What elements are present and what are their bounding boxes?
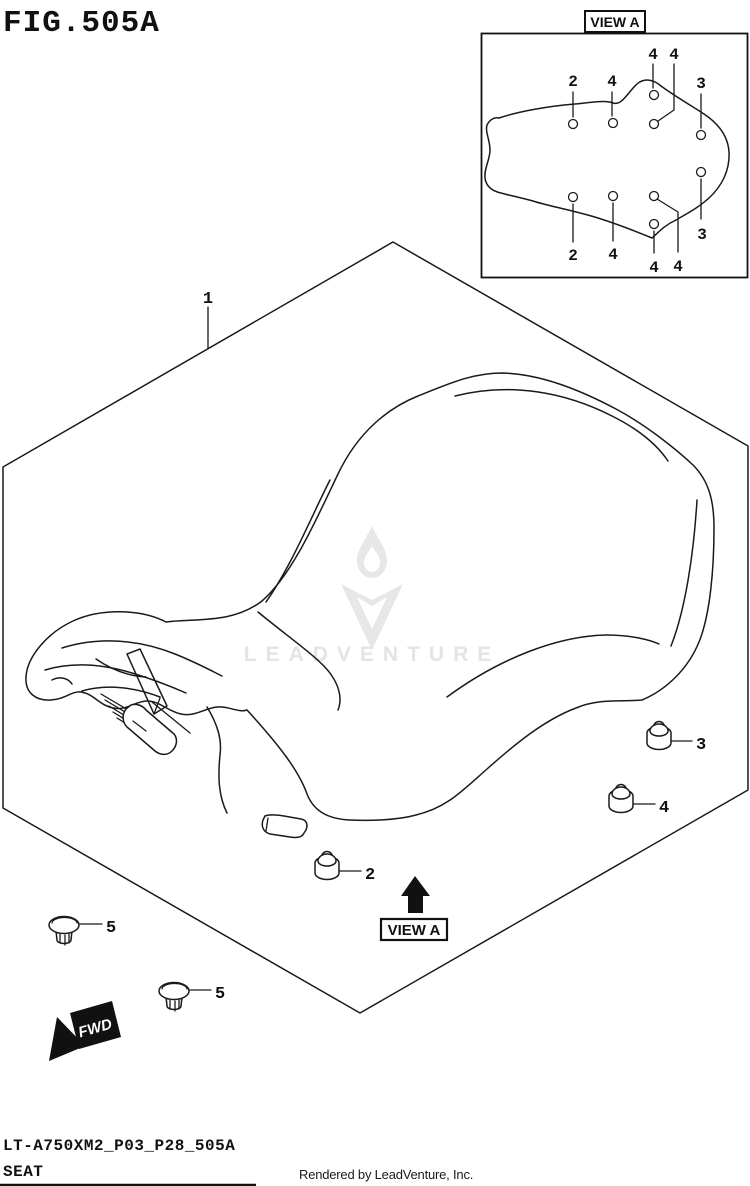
document-code: LT-A750XM2_P03_P28_505A [3, 1137, 235, 1155]
mount-hole [697, 131, 706, 140]
watermark-text: LEADVENTURE [244, 643, 501, 666]
parts-diagram: LEADVENTURE 1 [0, 0, 750, 1186]
mount-hole [650, 120, 659, 129]
inset-label: 4 [673, 258, 683, 276]
callout-3-label: 3 [696, 736, 706, 755]
mount-hole [650, 220, 659, 229]
mount-hole [650, 91, 659, 100]
inset-label: 2 [568, 73, 578, 91]
mount-hole [609, 192, 618, 201]
mount-hole [569, 193, 578, 202]
fwd-arrow: FWD [49, 1001, 121, 1061]
callout-1-label: 1 [203, 290, 213, 309]
view-a-arrow: VIEW A [381, 876, 447, 940]
fastener-nut-3 [647, 722, 671, 750]
inset-label: 4 [669, 46, 679, 64]
fastener-nut-2 [315, 852, 339, 880]
fastener-plug-5a [49, 917, 79, 946]
inset-label: 3 [697, 226, 707, 244]
view-a-title: VIEW A [590, 14, 639, 30]
part-title: SEAT [3, 1163, 43, 1181]
seat-foot-tab-front [123, 704, 176, 754]
render-credit: Rendered by LeadVenture, Inc. [299, 1167, 473, 1182]
inset-label: 4 [608, 246, 618, 264]
callout-5a-label: 5 [106, 919, 116, 938]
callout-2-label: 2 [365, 866, 375, 885]
watermark: LEADVENTURE [244, 526, 501, 666]
seat-foot-tab-bottom [262, 815, 307, 838]
mount-hole [569, 120, 578, 129]
fastener-nut-4 [609, 785, 633, 813]
up-arrow-icon [401, 876, 430, 913]
inset-view-a: VIEW A 2 4 4 4 3 2 4 [482, 11, 748, 278]
mount-hole [609, 119, 618, 128]
callout-5b-label: 5 [215, 985, 225, 1004]
seat-outline [26, 373, 714, 820]
fastener-callouts: 2 3 4 5 5 [80, 736, 706, 1004]
mount-hole [697, 168, 706, 177]
fastener-plug-5b [159, 983, 189, 1012]
inset-label: 3 [696, 75, 706, 93]
inset-label: 2 [568, 247, 578, 265]
inset-label: 4 [607, 73, 617, 91]
inset-box [482, 34, 748, 278]
view-a-label: VIEW A [388, 922, 441, 939]
inset-label: 4 [649, 259, 659, 277]
callout-seat: 1 [203, 290, 213, 348]
inset-label: 4 [648, 46, 658, 64]
callout-4-label: 4 [659, 799, 669, 818]
